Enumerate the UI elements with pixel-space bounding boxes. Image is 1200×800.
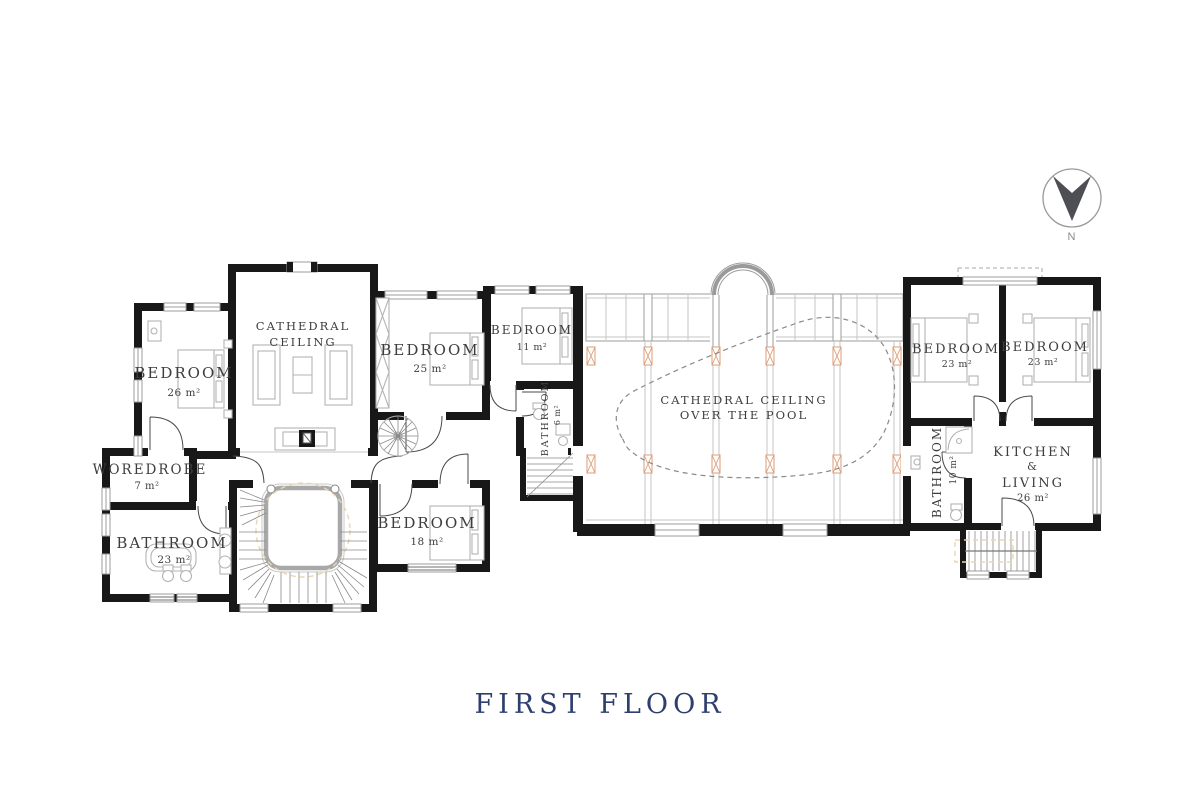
area-bedroom-25: 25 m² [413,363,446,375]
label-pool-2: OVER THE POOL [680,408,808,422]
area-bathroom-10: 10 m² [949,456,959,485]
north-label: N [1068,231,1077,243]
label-bedroom-18: BEDROOM [377,514,476,532]
stair-flared-opening [233,456,402,483]
label-cathedral-1: CATHEDRAL [256,319,350,333]
area-kitchen: 26 m² [1017,493,1049,504]
page-title: FIRST FLOOR [474,689,725,720]
label-bathroom-23: BATHROOM [116,534,227,552]
north-compass-icon: N [1043,169,1101,243]
bay-window [958,268,1042,277]
area-bedroom-26: 26 m² [167,387,200,399]
area-bedroom-18: 18 m² [410,536,443,548]
label-wardrobe: WOREDROBE [93,462,208,478]
room-wardrobe [106,452,193,506]
area-bedroom-23-right: 23 m² [1028,357,1058,368]
area-bathroom-23: 23 m² [157,554,190,566]
label-kitchen-3: LIVING [1002,476,1064,491]
label-cathedral-2: CEILING [269,335,336,349]
area-wardrobe: 7 m² [134,481,159,492]
area-bedroom-11: 11 m² [517,342,547,353]
floor-plan-drawing: BEDROOM 26 m² CATHEDRAL CEILING BEDROOM … [0,0,1200,800]
fireplace [275,428,335,450]
label-bedroom-26: BEDROOM [134,364,233,382]
label-pool-1: CATHEDRAL CEILING [660,393,827,407]
label-bedroom-11: BEDROOM [491,323,573,337]
spiral-staircase [378,416,418,456]
area-bedroom-23-left: 23 m² [942,359,972,370]
label-bedroom-25: BEDROOM [380,341,479,359]
area-bathroom-6: 6 m² [553,405,562,425]
label-kitchen-1: KITCHEN [993,445,1073,460]
label-bedroom-23-right: BEDROOM [1001,340,1089,355]
label-bathroom-6: BATHROOM [540,380,551,456]
label-kitchen-2: & [1027,460,1039,473]
label-bedroom-23-left: BEDROOM [912,342,1000,357]
floor-plan-page: BEDROOM 26 m² CATHEDRAL CEILING BEDROOM … [0,0,1200,800]
label-bathroom-10: BATHROOM [930,426,944,518]
